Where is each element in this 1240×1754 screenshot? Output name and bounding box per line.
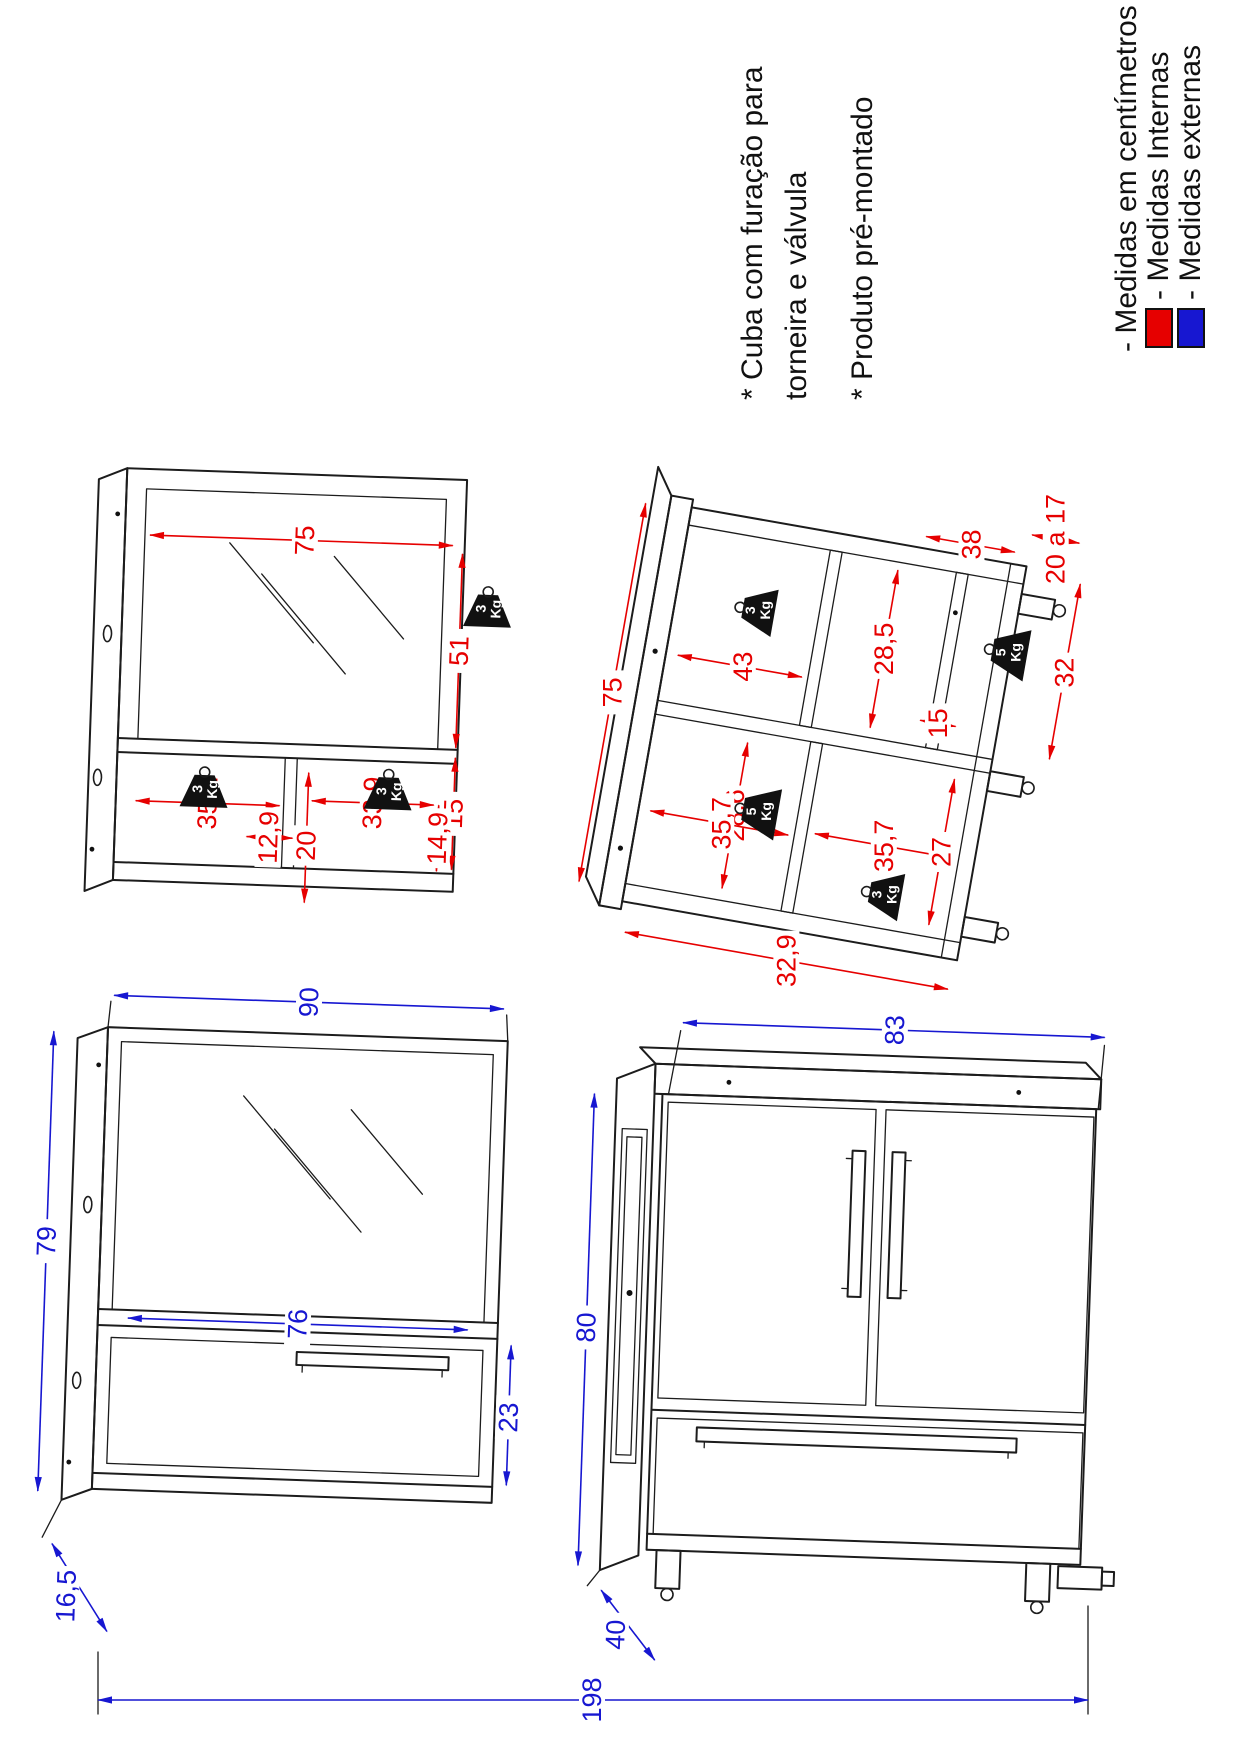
dim-mirror-external-height: 79	[31, 1219, 63, 1264]
dim-divider: 12,9	[252, 807, 284, 868]
svg-text:76: 76	[282, 1308, 313, 1339]
svg-text:51: 51	[444, 635, 475, 666]
dim-mirror-external-width: 90	[293, 980, 325, 1025]
svg-text:Kg: Kg	[1007, 643, 1023, 662]
dim-shelf-width: 76	[282, 1301, 314, 1346]
extension-line	[42, 1499, 61, 1538]
note-sink-line2: torneira e válvula	[780, 171, 813, 400]
dim-right-compartment-width: 28,5	[869, 619, 899, 679]
svg-text:3: 3	[472, 604, 488, 613]
dim-mirror-height: 51	[443, 628, 475, 673]
mirror-glass-slashes	[239, 1096, 425, 1234]
svg-text:Kg: Kg	[883, 885, 899, 904]
svg-text:5: 5	[743, 807, 759, 815]
svg-text:Kg: Kg	[388, 782, 405, 801]
svg-text:23: 23	[493, 1402, 524, 1433]
legend-external-swatch	[1178, 309, 1204, 347]
technical-drawing: 75 51 15 35,1 12,9 20 33,9	[0, 0, 1240, 1754]
left-door	[658, 1102, 876, 1405]
svg-text:Kg: Kg	[758, 802, 774, 821]
legend: - Medidas em centímetros - Medidas Inter…	[1110, 5, 1207, 352]
svg-text:20 a 17: 20 a 17	[1041, 494, 1071, 584]
dim-bottom-right-width: 32	[1050, 653, 1080, 693]
extension-line	[506, 1015, 509, 1041]
svg-text:79: 79	[31, 1226, 62, 1257]
drawer-front	[653, 1418, 1083, 1549]
dim-mirror-internal-width: 75	[289, 518, 321, 563]
assembly-sheet: 75 51 15 35,1 12,9 20 33,9	[0, 0, 1240, 1754]
dim-cabinet-internal-width: 75	[597, 670, 627, 714]
svg-text:Kg: Kg	[204, 780, 221, 799]
mirror-cabinet-external-view: 90 79 76 23 16,5	[18, 971, 539, 1646]
svg-text:3: 3	[868, 890, 884, 898]
floor-cabinet-top	[638, 1047, 1101, 1109]
svg-text:198: 198	[577, 1677, 607, 1722]
svg-text:27: 27	[927, 837, 957, 867]
extension-line	[668, 1030, 680, 1094]
right-door-handle	[888, 1152, 912, 1299]
mirror-cabinet-internal-view: 75 51 15 35,1 12,9 20 33,9	[84, 467, 516, 909]
dim-door-height: 23	[493, 1395, 525, 1440]
svg-text:35,7: 35,7	[706, 797, 736, 850]
legend-units-label: - Medidas em centímetros	[1110, 5, 1143, 352]
svg-text:38: 38	[956, 529, 986, 559]
weight-badge-5kg: 5Kg	[980, 623, 1031, 682]
weight-badge-3kg: 3Kg	[731, 583, 779, 637]
right-door	[876, 1110, 1094, 1413]
dim-upper-depth: 35,7	[706, 793, 736, 853]
extension-line	[108, 1001, 111, 1027]
note-preassembled: * Produto pré-montado	[846, 96, 879, 400]
dim-shelf-gap: 15	[923, 703, 953, 743]
svg-text:75: 75	[597, 677, 627, 707]
svg-text:32: 32	[1050, 658, 1080, 688]
dim-bottom-depth: 38	[956, 525, 986, 565]
svg-text:12,9: 12,9	[253, 811, 285, 865]
left-door-handle	[842, 1150, 866, 1297]
svg-text:14,9: 14,9	[422, 811, 454, 865]
mirror-cabinet-side-panel	[61, 1026, 108, 1501]
floor-cabinet-legs	[655, 1550, 1114, 1616]
svg-text:90: 90	[293, 987, 324, 1018]
floor-cabinet-body	[647, 1094, 1097, 1565]
dim-right-divider: 14,9	[422, 808, 454, 869]
dim-side-depth: 32,9	[771, 931, 801, 991]
legend-internal-swatch	[1146, 309, 1172, 347]
svg-text:80: 80	[571, 1312, 602, 1343]
svg-text:5: 5	[992, 648, 1008, 656]
floor-cabinet-internal-view: 75 32,9 28,6 43 35,7 35,7 15	[548, 416, 1114, 1035]
svg-text:15: 15	[923, 708, 953, 738]
svg-text:32,9: 32,9	[771, 934, 801, 987]
flip-door	[107, 1337, 483, 1476]
svg-text:3: 3	[189, 784, 205, 793]
weight-badge-3kg: 3Kg	[463, 586, 512, 628]
floor-cabinet-external-view: 83 80 40	[560, 997, 1134, 1676]
dim-cabinet-external-width: 83	[879, 1008, 911, 1053]
drawer-handle	[696, 1427, 1017, 1458]
dim-lower-depth: 35,7	[869, 816, 899, 876]
dim-bottom-left-width: 27	[927, 832, 957, 872]
dim-mirror-depth: 16,5	[50, 1566, 82, 1627]
total-dimension: 198	[98, 1606, 1088, 1728]
dim-total-height: 198	[577, 1672, 607, 1728]
svg-text:83: 83	[879, 1015, 910, 1046]
mirror-cabinet-frame	[92, 1027, 508, 1503]
svg-text:16,5: 16,5	[50, 1569, 82, 1623]
dim-foot-height-range: 20 a 17	[1041, 491, 1071, 587]
svg-text:40: 40	[600, 1619, 631, 1650]
svg-text:3: 3	[373, 787, 389, 796]
svg-text:Kg: Kg	[487, 600, 504, 619]
svg-text:35,7: 35,7	[869, 820, 899, 873]
note-sink-line1: * Cuba com furação para	[736, 66, 769, 400]
notes: * Cuba com furação para torneira e válvu…	[736, 66, 879, 400]
dim-cabinet-depth: 40	[600, 1612, 632, 1657]
legend-internal-label: - Medidas Internas	[1142, 52, 1175, 300]
svg-text:3: 3	[742, 606, 758, 614]
dim-right-compartment-height: 43	[728, 647, 758, 687]
svg-text:28,5: 28,5	[869, 623, 899, 676]
svg-text:43: 43	[728, 652, 758, 682]
dim-shelf-depth: 20	[291, 825, 322, 866]
svg-text:75: 75	[289, 525, 320, 556]
dim-cabinet-external-height: 80	[571, 1305, 603, 1350]
svg-text:20: 20	[291, 830, 322, 861]
svg-text:Kg: Kg	[757, 601, 773, 620]
extension-line	[587, 1570, 600, 1586]
floor-cabinet-side-panel	[600, 1062, 656, 1571]
legend-external-label: - Medidas externas	[1174, 45, 1207, 300]
